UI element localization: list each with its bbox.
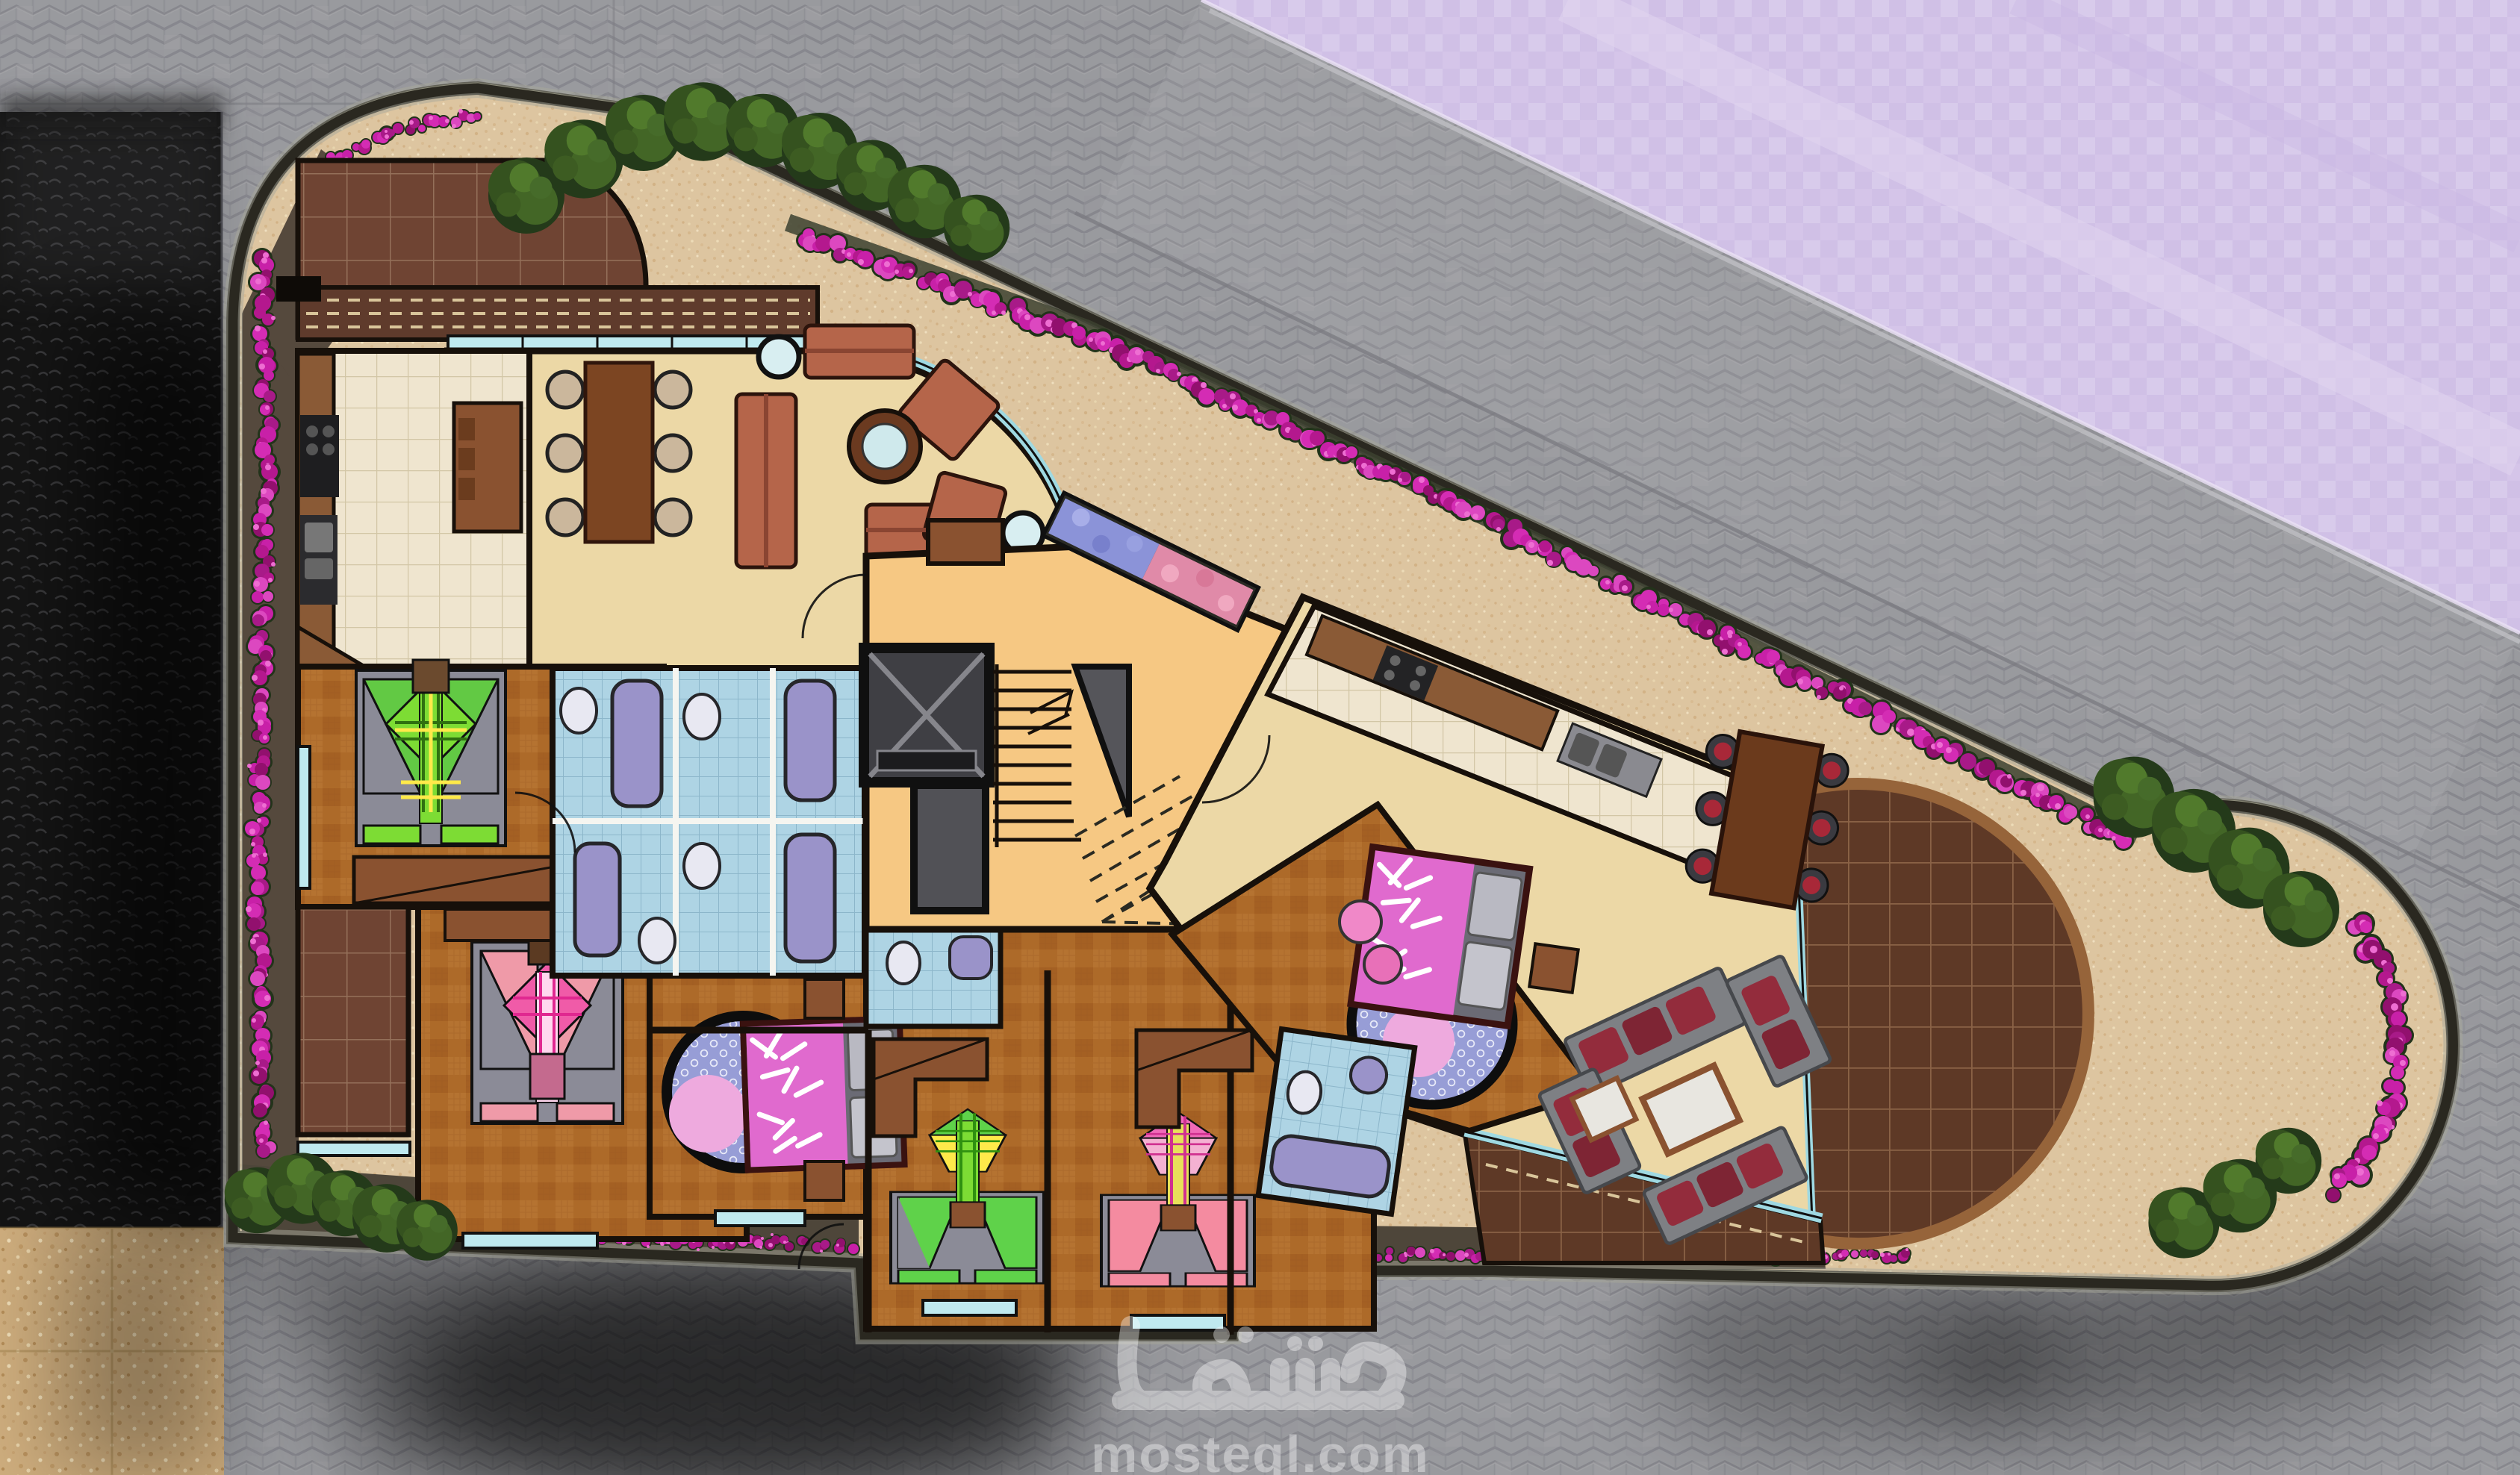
svg-text:mosteql.com: mosteql.com [1091, 1425, 1430, 1475]
